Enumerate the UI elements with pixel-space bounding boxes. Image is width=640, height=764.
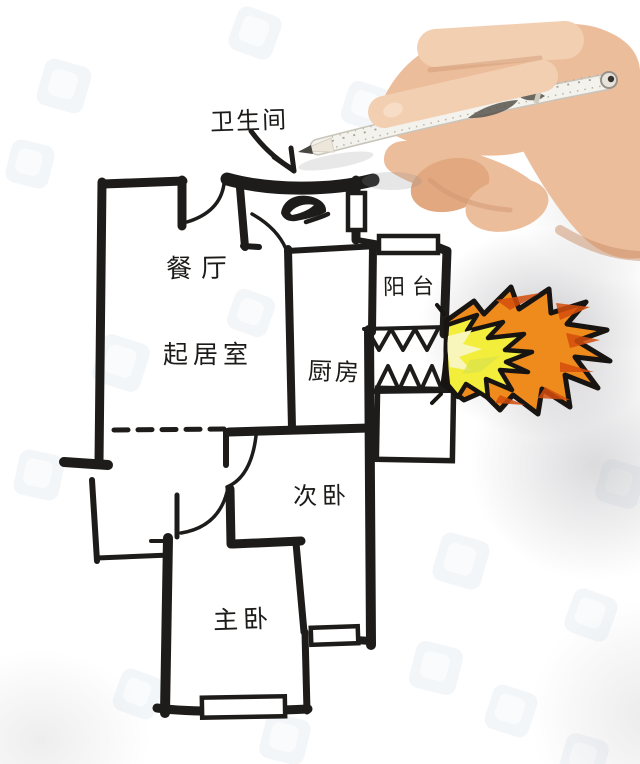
wall — [369, 330, 371, 645]
wall — [230, 489, 231, 544]
wall — [92, 480, 97, 561]
wall — [227, 179, 373, 188]
pencil-graphite-tip — [298, 145, 313, 154]
wall — [296, 543, 304, 632]
room-label-second-bedroom: 次卧 — [293, 475, 352, 511]
wall — [233, 541, 301, 544]
door-arc — [181, 492, 227, 533]
window — [311, 626, 359, 645]
wall — [64, 462, 108, 465]
wall — [240, 188, 245, 247]
bathroom-arrow — [251, 131, 294, 171]
wall — [287, 246, 377, 251]
door-arc — [187, 184, 224, 222]
pencil-end-dot — [608, 76, 614, 82]
fire-flame-illustration — [432, 287, 610, 414]
wall — [103, 181, 183, 184]
window — [202, 696, 285, 717]
toilet-icon — [281, 196, 328, 222]
illustration-canvas: 卫生间 餐厅 起居室 厨房 阳台 次卧 主卧 — [0, 0, 640, 764]
wall — [372, 247, 373, 332]
wall — [229, 428, 369, 432]
room-label-balcony: 阳台 — [383, 268, 442, 301]
wall — [99, 182, 102, 462]
room-label-dining: 餐厅 — [166, 247, 237, 285]
wall — [243, 246, 259, 247]
wall — [97, 555, 170, 558]
window-zigzags — [364, 327, 450, 392]
window — [379, 236, 438, 253]
wall — [305, 632, 307, 711]
room-label-kitchen: 厨房 — [307, 351, 362, 388]
door-arc — [252, 214, 286, 249]
room-label-master-bedroom: 主卧 — [212, 599, 273, 637]
wall — [165, 538, 168, 713]
room-label-bathroom: 卫生间 — [209, 100, 288, 138]
room-label-living: 起居室 — [163, 335, 253, 371]
window — [348, 193, 365, 230]
thumb-paper-shadow — [362, 172, 422, 190]
wall — [288, 249, 292, 428]
dashed-boundary — [114, 429, 227, 430]
door-arc — [227, 436, 256, 487]
balcony-lower-block — [376, 388, 453, 460]
finger-upper — [436, 40, 565, 48]
wall — [357, 240, 380, 244]
